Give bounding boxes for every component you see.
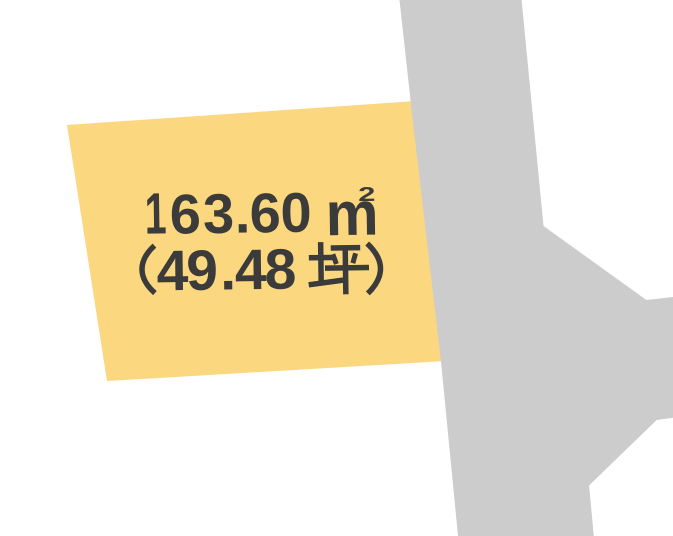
svg-text:1: 1 (144, 181, 167, 247)
svg-text:2: 2 (358, 183, 376, 206)
svg-text:49.48: 49.48 (156, 237, 297, 303)
svg-text:63.60: 63.60 (169, 181, 312, 246)
